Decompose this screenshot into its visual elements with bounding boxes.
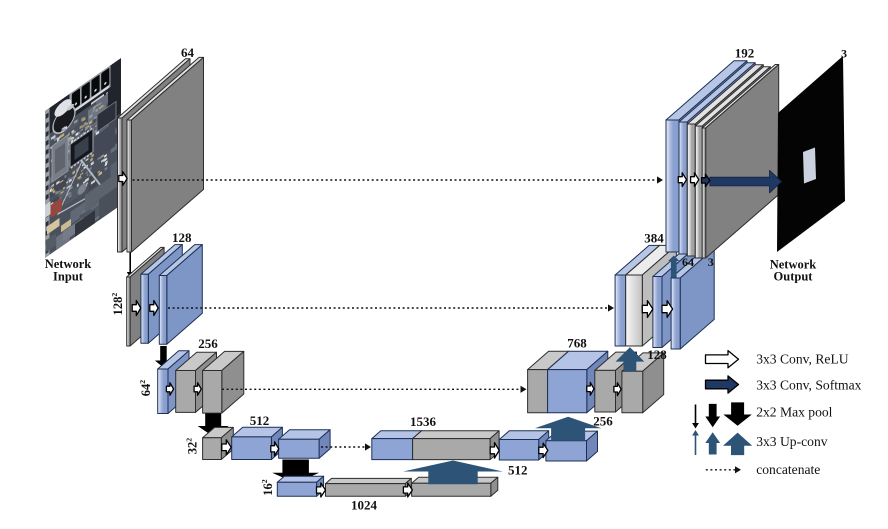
svg-text:192: 192 bbox=[735, 46, 755, 61]
svg-text:3: 3 bbox=[708, 255, 714, 269]
svg-text:3: 3 bbox=[841, 47, 847, 61]
svg-text:1536: 1536 bbox=[410, 414, 437, 429]
svg-text:128: 128 bbox=[172, 230, 192, 245]
svg-text:256: 256 bbox=[198, 336, 218, 351]
svg-text:768: 768 bbox=[567, 336, 587, 351]
svg-text:concatenate: concatenate bbox=[756, 462, 820, 477]
svg-text:Input: Input bbox=[53, 270, 84, 284]
svg-text:512: 512 bbox=[508, 463, 528, 478]
svg-text:128: 128 bbox=[647, 347, 667, 362]
svg-text:2x2 Max pool: 2x2 Max pool bbox=[756, 405, 832, 420]
svg-text:3x3 Up-conv: 3x3 Up-conv bbox=[756, 434, 828, 449]
svg-text:384: 384 bbox=[644, 231, 664, 246]
svg-text:3x3 Conv, ReLU: 3x3 Conv, ReLU bbox=[756, 352, 849, 367]
svg-text:256: 256 bbox=[593, 414, 613, 429]
svg-text:Output: Output bbox=[774, 270, 814, 284]
svg-text:64: 64 bbox=[682, 255, 694, 269]
svg-text:3x3 Conv, Softmax: 3x3 Conv, Softmax bbox=[756, 378, 861, 393]
svg-text:64: 64 bbox=[181, 45, 195, 60]
svg-text:512: 512 bbox=[250, 413, 270, 428]
svg-text:1024: 1024 bbox=[351, 498, 378, 513]
